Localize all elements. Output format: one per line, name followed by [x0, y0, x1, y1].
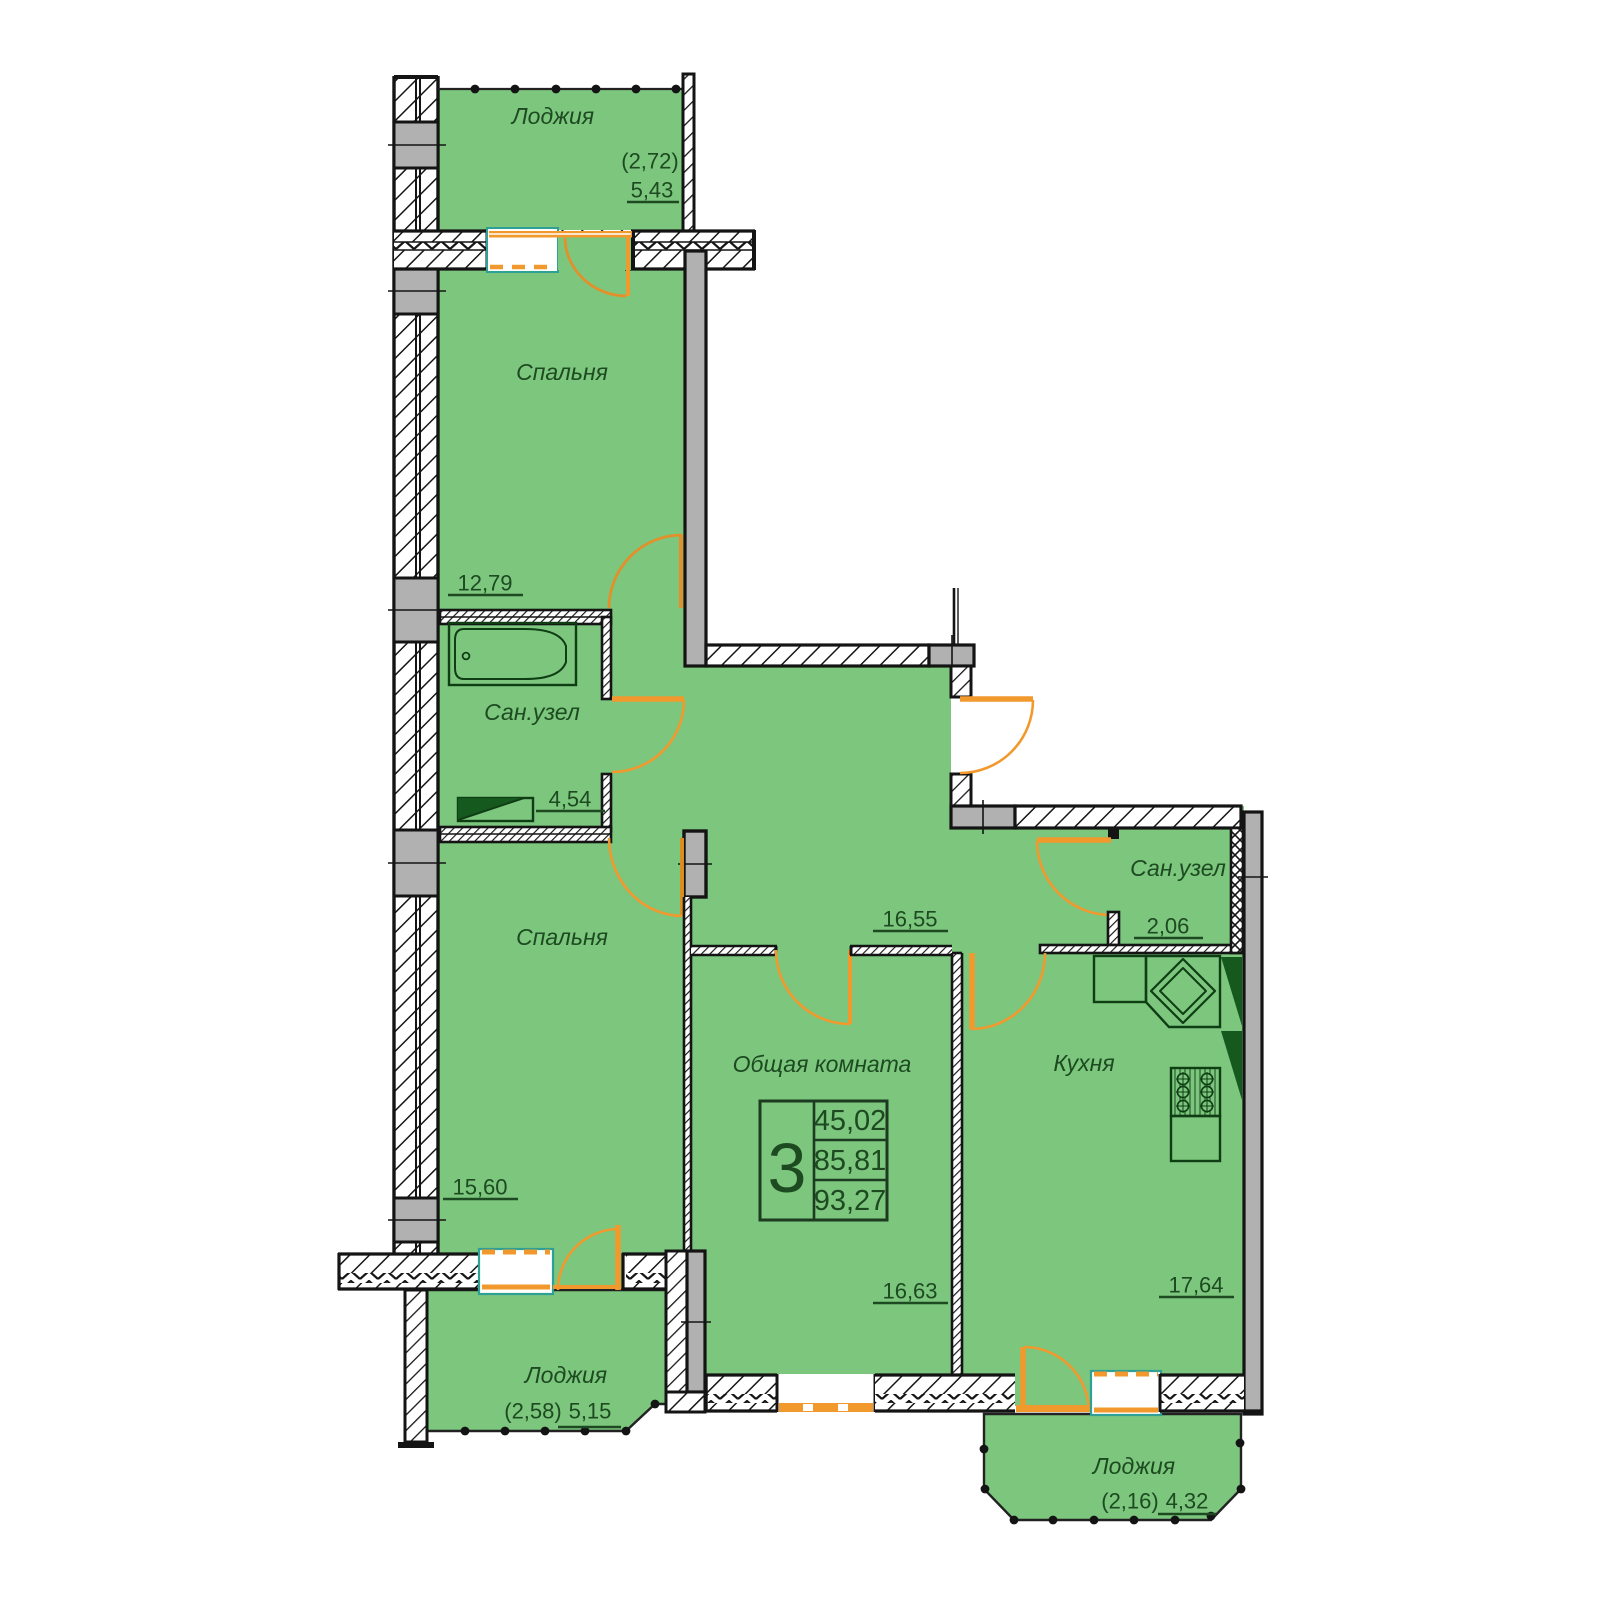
- svg-text:85,81: 85,81: [814, 1145, 887, 1177]
- svg-text:93,27: 93,27: [814, 1185, 887, 1217]
- svg-text:Сан.узел: Сан.узел: [484, 699, 580, 725]
- svg-text:Сан.узел: Сан.узел: [1130, 855, 1226, 881]
- svg-text:Спальня: Спальня: [516, 924, 608, 950]
- svg-text:Спальня: Спальня: [516, 359, 608, 385]
- svg-text:4,54: 4,54: [549, 787, 592, 812]
- svg-text:4,32: 4,32: [1166, 1489, 1209, 1514]
- svg-text:(2,16): (2,16): [1101, 1489, 1158, 1514]
- svg-text:3: 3: [768, 1129, 807, 1207]
- svg-text:12,79: 12,79: [457, 571, 512, 596]
- svg-text:(2,72): (2,72): [621, 149, 678, 174]
- svg-text:(2,58): (2,58): [504, 1399, 561, 1424]
- svg-text:2,06: 2,06: [1147, 914, 1190, 939]
- svg-text:Лоджия: Лоджия: [523, 1362, 607, 1388]
- svg-text:16,63: 16,63: [882, 1279, 937, 1304]
- svg-text:Лоджия: Лоджия: [510, 103, 594, 129]
- svg-text:Общая комната: Общая комната: [733, 1051, 912, 1077]
- svg-text:16,55: 16,55: [882, 907, 937, 932]
- svg-text:45,02: 45,02: [814, 1105, 887, 1137]
- svg-text:5,15: 5,15: [569, 1399, 612, 1424]
- svg-text:15,60: 15,60: [452, 1175, 507, 1200]
- svg-text:Лоджия: Лоджия: [1091, 1453, 1175, 1479]
- svg-text:17,64: 17,64: [1168, 1273, 1223, 1298]
- svg-text:Кухня: Кухня: [1053, 1050, 1114, 1076]
- svg-text:5,43: 5,43: [631, 178, 674, 203]
